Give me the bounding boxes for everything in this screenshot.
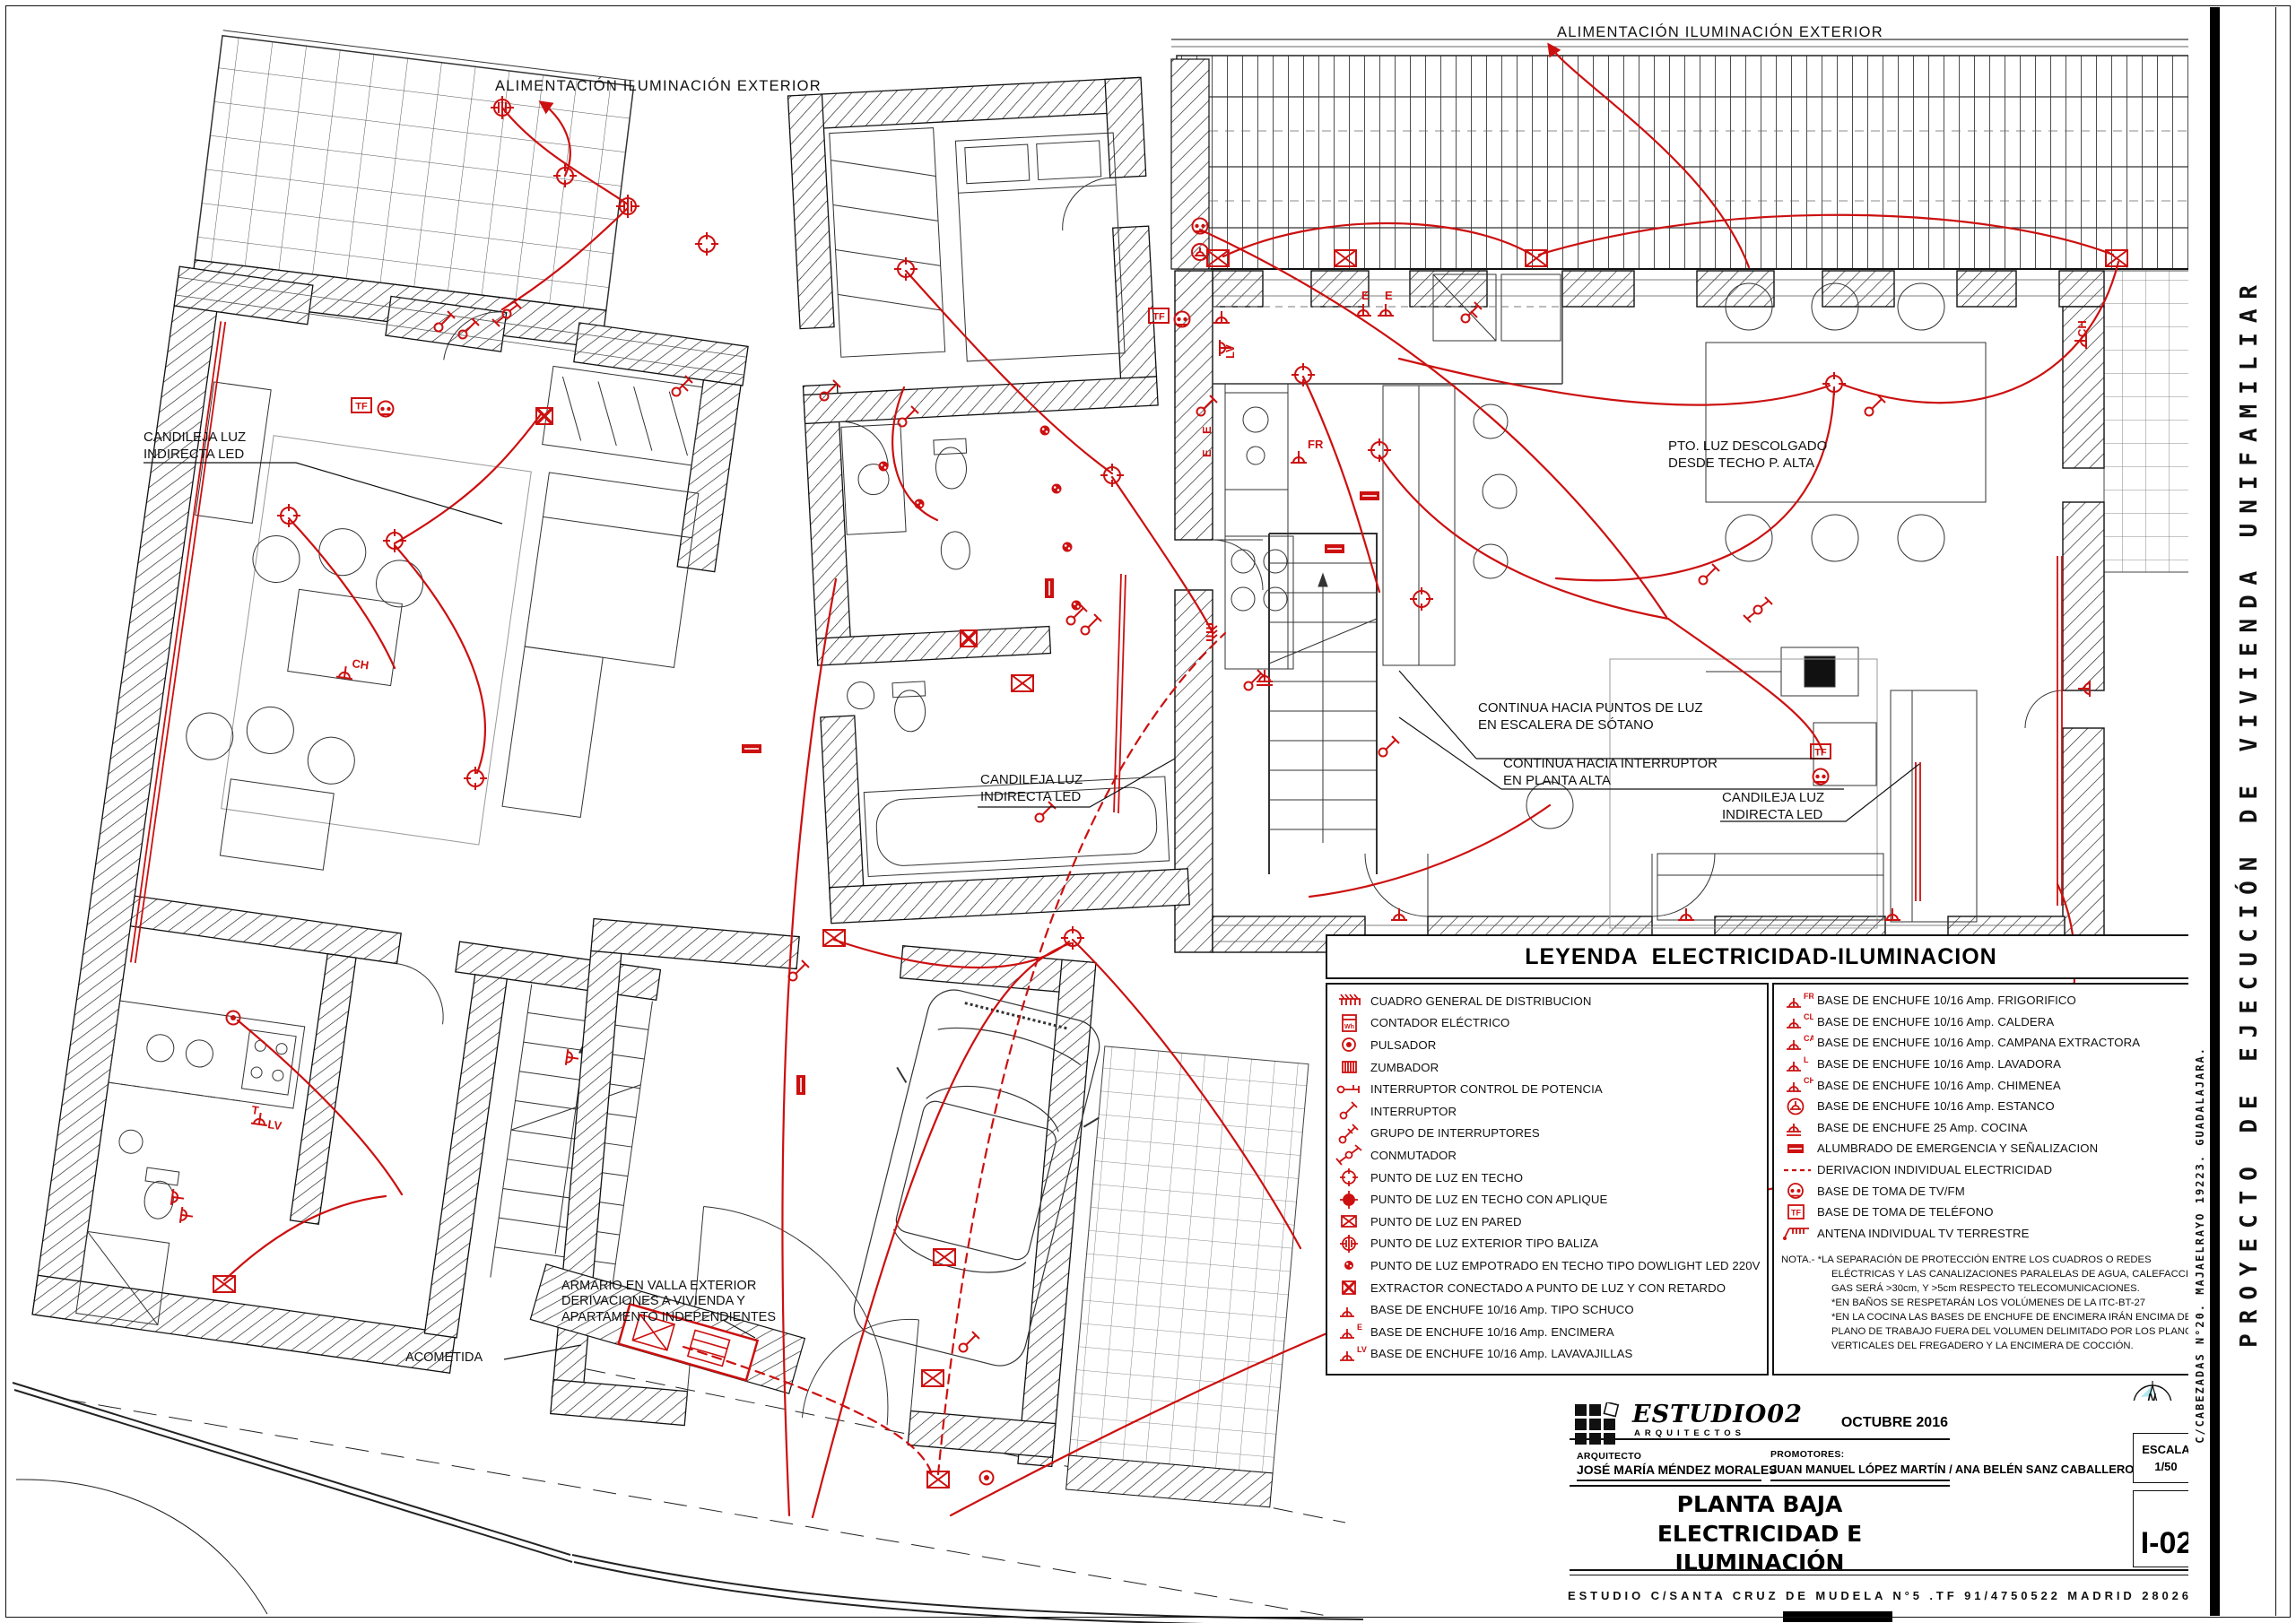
annotation-continua-sotano: CONTINUA HACIA PUNTOS DE LUZ EN ESCALERA… [1478,699,1703,733]
ceiling-light-icon [383,529,406,552]
schuco-L-icon: L [1781,1054,1817,1075]
legend-item-label: BASE DE ENCHUFE 10/16 Amp. LAVADORA [1817,1057,2061,1071]
legend-item-label: PULSADOR [1370,1038,1436,1052]
baliza-icon [1335,1233,1370,1254]
schuco-LV-icon: LV [1335,1343,1370,1365]
emergency-light-icon [1325,544,1344,553]
push-button-icon [980,1471,994,1485]
legend-item-label: INTERRUPTOR CONTROL DE POTENCIA [1370,1082,1603,1096]
socket-icon [1884,908,1900,920]
conmutador-icon [1335,1144,1370,1166]
legend-item: CONMUTADOR [1335,1144,1763,1167]
ceiling-light-icon [464,767,487,790]
cuadro-icon [1335,990,1370,1011]
legend-item: GRUPO DE INTERRUPTORES [1335,1123,1763,1145]
socket-tag: E [1200,449,1213,457]
socket-tag: FR [1308,438,1324,451]
pulsador-icon [1335,1034,1370,1055]
svg-text:Wh: Wh [1344,1024,1354,1030]
drawing-sheet: TF [0,0,2296,1623]
wall-light-icon [922,1370,944,1386]
annotation-alimentacion-exterior-2: ALIMENTACIÓN ILUMINACIÓN EXTERIOR [1557,23,1883,42]
legend-item: CLBASE DE ENCHUFE 10/16 Amp. CALDERA [1781,1011,2191,1033]
circuit-wire [395,414,541,543]
tv-socket-icon [378,402,394,417]
legend-item: LBASE DE ENCHUFE 10/16 Amp. LAVADORA [1781,1054,2191,1075]
legend-item-label: BASE DE ENCHUFE 10/16 Amp. ENCIMERA [1370,1325,1614,1339]
legend-item-label: ANTENA INDIVIDUAL TV TERRESTRE [1817,1227,2030,1240]
annotation-acometida: ACOMETIDA [405,1350,483,1366]
main-house-furniture [1213,271,2063,928]
legend-nota: NOTA.- *LA SEPARACIÓN DE PROTECCIÓN ENTR… [1781,1253,2191,1353]
socket-tag: E [1361,289,1370,302]
legend-item-label: ZUMBADOR [1370,1061,1439,1074]
annotation-candileja-1: CANDILEJA LUZ INDIRECTA LED [143,429,246,463]
ceiling-light-icon [1410,587,1433,611]
circuit-wire [1303,377,1379,592]
circuit-wire [1399,359,1830,405]
downlight-icon [1052,484,1062,494]
switch-group-icon [673,376,693,396]
downlight-icon [1063,542,1073,552]
downlight-icon [1040,426,1050,436]
legend-item: DERIVACION INDIVIDUAL ELECTRICIDAD [1781,1159,2191,1181]
zumbador-icon [1335,1056,1370,1078]
sheet-title-line1: PLANTA BAJA [1570,1490,1950,1520]
contador-icon: Wh [1335,1012,1370,1034]
estanco-icon [1781,1096,1817,1117]
sidebar-edge-line [2275,7,2276,1616]
svg-text:LV: LV [1357,1345,1367,1354]
logo-word: ESTUDIO02 [1632,1402,1803,1427]
annotation-alimentacion-exterior-1: ALIMENTACIÓN ILUMINACIÓN EXTERIOR [495,77,822,96]
sidebar-address-text: C/CABEZADAS N°20. MAJAELRAYO 19223. GUAD… [2190,924,2210,1566]
socket-icon [1378,304,1394,316]
legend-item: PUNTO DE LUZ EXTERIOR TIPO BALIZA [1335,1233,1763,1255]
downlight-icon [1072,601,1082,611]
circuit-wire [1556,387,1834,580]
annotation-pto-luz-descolgado: PTO. LUZ DESCOLGADO DESDE TECHO P. ALTA [1668,438,1827,472]
legend-item: FRBASE DE ENCHUFE 10/16 Amp. FRIGORIFICO [1781,990,2191,1011]
legend-item-label: BASE DE TOMA DE TELÉFONO [1817,1205,1994,1219]
legend-item-label: PUNTO DE LUZ EN TECHO [1370,1171,1523,1185]
legend-item-label: BASE DE ENCHUFE 10/16 Amp. CHIMENEA [1817,1079,2061,1092]
bottom-black-bar [1783,1611,1892,1622]
emergency-light-icon [742,744,761,753]
grupo-icon [1335,1123,1370,1144]
schuco-E-icon: E [1335,1321,1370,1342]
legend-item: PUNTO DE LUZ EN TECHO CON APLIQUE [1335,1188,1763,1211]
wall-light-icon [1012,675,1033,691]
svg-text:TF: TF [1791,1208,1801,1217]
switch-icon [1865,395,1886,416]
antena-icon [1781,1222,1817,1244]
date: OCTUBRE 2016 [1813,1415,1948,1431]
ceiling-light-icon [695,232,718,256]
svg-text:CL: CL [1804,1012,1813,1021]
socket-icon [566,1049,579,1067]
nota-line: NOTA.- *LA SEPARACIÓN DE PROTECCIÓN ENTR… [1781,1253,2191,1267]
studio-logo: ESTUDIO02 ARQUITECTOS [1573,1402,1803,1451]
legend-item: ZUMBADOR [1335,1056,1763,1079]
nota-line: *EN BAÑOS SE RESPETARÁN LOS VOLÚMENES DE… [1831,1296,2191,1310]
legend-item-label: PUNTO DE LUZ EN TECHO CON APLIQUE [1370,1193,1607,1206]
sheet-title: PLANTA BAJA ELECTRICIDAD E ILUMINACIÓN [1570,1490,1950,1578]
ceiling-light-icon [1822,372,1846,395]
legend-item: INTERRUPTOR CONTROL DE POTENCIA [1335,1078,1763,1100]
circuit-wire [395,545,485,773]
main-house-walls [1175,269,2208,952]
legend-item: CABASE DE ENCHUFE 10/16 Amp. CAMPANA EXT… [1781,1032,2191,1054]
ceiling-light-icon [1368,438,1391,462]
schuco-CL-icon: CL [1781,1011,1817,1032]
floor-plan-canvas: TF [0,0,2296,1623]
legend-item: PUNTO DE LUZ EMPOTRADO EN TECHO TIPO DOW… [1335,1254,1763,1277]
legend-item-label: DERIVACION INDIVIDUAL ELECTRICIDAD [1817,1163,2052,1176]
svg-text:FR: FR [1804,992,1813,1001]
icp-icon [1335,1079,1370,1100]
sheet-number: I-02 [2141,1526,2194,1561]
wall-light-icon [213,1276,235,1292]
svg-text:E: E [1357,1323,1362,1332]
legend-item-label: CONTADOR ELÉCTRICO [1370,1016,1509,1029]
svg-text:CH: CH [1804,1076,1813,1085]
legend-item-label: PUNTO DE LUZ EMPOTRADO EN TECHO TIPO DOW… [1370,1259,1761,1272]
luz-aplique-icon [1335,1189,1370,1211]
legend-item-label: PUNTO DE LUZ EXTERIOR TIPO BALIZA [1370,1237,1598,1250]
emergency-light-icon [1360,491,1379,500]
wall-light-icon [934,1249,955,1265]
nota-line: PLANO DE TRABAJO FUERA DEL VOLUMEN DELIM… [1831,1324,2191,1339]
logo-subtitle: ARQUITECTOS [1634,1428,1803,1438]
legend-item: BASE DE ENCHUFE 10/16 Amp. ESTANCO [1781,1096,2191,1117]
legend-item-label: BASE DE ENCHUFE 10/16 Amp. FRIGORIFICO [1817,994,2076,1007]
tf-icon: TF [1781,1202,1817,1223]
nota-line: VERTICALES DEL FREGADERO Y LA ENCIMERA D… [1831,1339,2191,1353]
downlight-icon [915,499,925,509]
legend-item-label: PUNTO DE LUZ EN PARED [1370,1215,1522,1228]
commutator-icon [1744,597,1772,622]
legend-item: WhCONTADOR ELÉCTRICO [1335,1012,1763,1035]
legend-item-label: BASE DE ENCHUFE 10/16 Amp. LAVAVAJILLAS [1370,1347,1632,1360]
phone-socket-icon [352,398,371,412]
svg-text:CA: CA [1804,1034,1813,1043]
socket-tag: T [251,1103,260,1117]
legend-item: CUADRO GENERAL DE DISTRIBUCION [1335,990,1763,1012]
logo-squares-icon [1573,1402,1625,1451]
socket-icon [1391,908,1407,920]
arquitecto-label: ARQUITECTO [1577,1451,1641,1462]
legend-item-label: BASE DE ENCHUFE 10/16 Amp. TIPO SCHUCO [1370,1303,1634,1316]
annotation-candileja-3: CANDILEJA LUZ INDIRECTA LED [1722,789,1824,823]
legend-item-label: GRUPO DE INTERRUPTORES [1370,1126,1540,1140]
legend-item-label: ALUMBRADO DE EMERGENCIA Y SEÑALIZACION [1817,1141,2098,1155]
svg-text:L: L [1804,1055,1809,1064]
legend-item: EXTRACTOR CONECTADO A PUNTO DE LUZ Y CON… [1335,1277,1763,1299]
tvfm-icon [1781,1180,1817,1202]
downlight-icon [1335,1254,1370,1276]
tv-socket-icon [1813,769,1829,785]
schuco-icon [1335,1299,1370,1321]
legend-item: BASE DE ENCHUFE 10/16 Amp. TIPO SCHUCO [1335,1298,1763,1321]
legend-item: LVBASE DE ENCHUFE 10/16 Amp. LAVAVAJILLA… [1335,1343,1763,1366]
garage-block [548,919,1316,1507]
circuit-wire [1309,805,1550,897]
switch-icon [960,1332,980,1352]
switch-icon [1700,564,1720,585]
emergency-light-icon [1045,578,1054,598]
downlight-icon [879,462,889,472]
socket-tag: E [1385,289,1393,302]
emergency-light-icon [796,1075,805,1095]
legend-item: TFBASE DE TOMA DE TELÉFONO [1781,1202,2191,1223]
socket-tag: E [1200,426,1213,434]
legend-item-label: BASE DE ENCHUFE 25 Amp. COCINA [1817,1121,2028,1134]
legend-item-label: CONMUTADOR [1370,1149,1457,1162]
socket-icon [1291,451,1307,463]
luz-pared-icon [1335,1211,1370,1232]
legend-item: ANTENA INDIVIDUAL TV TERRESTRE [1781,1223,2191,1245]
ceiling-light-icon [894,257,918,281]
legend-item-label: BASE DE ENCHUFE 10/16 Amp. CAMPANA EXTRA… [1817,1036,2140,1049]
legend-item: PUNTO DE LUZ EN TECHO [1335,1167,1763,1189]
schuco-CH-icon: CH [1781,1074,1817,1096]
legend-column-left: CUADRO GENERAL DE DISTRIBUCIONWhCONTADOR… [1326,983,1769,1376]
circuit-wire [1379,456,1668,619]
nota-line: *EN LA COCINA LAS BASES DE ENCHUFE DE EN… [1831,1310,2191,1324]
socket-tag: CH [2075,320,2089,337]
legend-title: LEYENDA ELECTRICIDAD-ILUMINACION [1326,934,2196,979]
emergencia-icon [1781,1138,1817,1159]
circuit-wire [906,271,1112,473]
switch-icon [1379,736,1400,757]
socket-tag: LV [267,1117,283,1133]
sidebar-project-text: PROYECTO DE EJECUCIÓN DE VIVIENDA UNIFAM… [2222,7,2276,1616]
annotation-continua-planta-alta: CONTINUA HACIA INTERRUPTOR EN PLANTA ALT… [1503,755,1718,789]
schuco-CA-icon: CA [1781,1032,1817,1054]
legend-item: PUNTO DE LUZ EN PARED [1335,1211,1763,1233]
interruptor-icon [1335,1100,1370,1122]
legend-item-label: BASE DE ENCHUFE 10/16 Amp. ESTANCO [1817,1099,2055,1113]
legend-item: PULSADOR [1335,1034,1763,1056]
promotores-names: JUAN MANUEL LÓPEZ MARTÍN / ANA BELÉN SAN… [1770,1462,2134,1476]
luz-techo-icon [1335,1167,1370,1188]
sidebar-divider-bar [2210,7,2220,1616]
socket-tag: LV [1223,344,1237,359]
legend-item: BASE DE ENCHUFE 25 Amp. COCINA [1781,1117,2191,1139]
legend-item-label: EXTRACTOR CONECTADO A PUNTO DE LUZ Y CON… [1370,1281,1726,1295]
extractor-icon [1335,1277,1370,1298]
annotation-armario: ARMARIO EN VALLA EXTERIOR DERIVACIONES A… [561,1279,776,1325]
socket-icon [180,1207,194,1225]
annotation-candileja-2: CANDILEJA LUZ INDIRECTA LED [980,771,1083,805]
switch-icon [1245,670,1265,690]
socket-icon [1213,311,1230,323]
schuco-FR-icon: FR [1781,990,1817,1011]
studio-address-footer: ESTUDIO C/SANTA CRUZ DE MUDELA N°5 .TF 9… [1568,1589,2280,1602]
legend-item: INTERRUPTOR [1335,1100,1763,1123]
promotores-label: PROMOTORES: [1770,1449,1844,1460]
legend-column-right: FRBASE DE ENCHUFE 10/16 Amp. FRIGORIFICO… [1772,983,2196,1376]
legend-item: CHBASE DE ENCHUFE 10/16 Amp. CHIMENEA [1781,1074,2191,1096]
switch-icon [1082,614,1102,635]
legend-item-label: CUADRO GENERAL DE DISTRIBUCION [1370,994,1592,1008]
ceiling-light-icon [277,504,300,527]
arquitecto-name: JOSÉ MARÍA MÉNDEZ MORALES [1577,1462,1778,1477]
legend-item: EBASE DE ENCHUFE 10/16 Amp. ENCIMERA [1335,1321,1763,1343]
cocina-icon [1781,1116,1817,1138]
legend-item-label: BASE DE TOMA DE TV/FM [1817,1185,1965,1198]
nota-line: GAS SERÁ >30cm, Y >5cm RESPECTO TELECOMU… [1831,1281,2191,1296]
derivacion-icon [1781,1159,1817,1181]
ceiling-light-icon [1291,363,1315,386]
legend-item: ALUMBRADO DE EMERGENCIA Y SEÑALIZACION [1781,1138,2191,1159]
nota-line: ELÉCTRICAS Y LAS CANALIZACIONES PARALELA… [1831,1267,2191,1281]
legend-item-label: BASE DE ENCHUFE 10/16 Amp. CALDERA [1817,1015,2054,1028]
title-block: ESTUDIO02 ARQUITECTOS OCTUBRE 2016 ARQUI… [1562,1401,2208,1580]
wall-light-icon [823,930,845,946]
legend-item: BASE DE TOMA DE TV/FM [1781,1180,2191,1202]
legend-item-label: INTERRUPTOR [1370,1105,1457,1118]
left-wing [32,266,748,1394]
socket-tag: CH [352,656,370,672]
